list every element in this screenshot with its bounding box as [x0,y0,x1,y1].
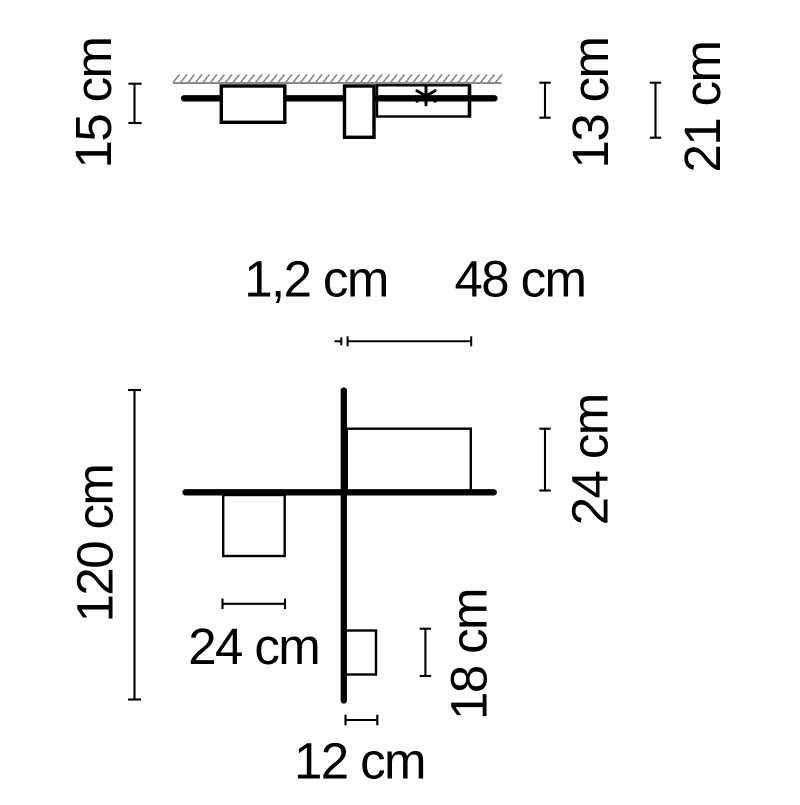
svg-text:24 cm: 24 cm [188,618,319,675]
svg-text:48 cm: 48 cm [455,251,586,308]
svg-text:24 cm: 24 cm [562,394,619,525]
svg-text:12 cm: 12 cm [294,733,425,790]
svg-text:13 cm: 13 cm [562,38,619,169]
svg-text:15 cm: 15 cm [65,38,122,169]
svg-text:21 cm: 21 cm [674,42,731,173]
svg-text:1,2 cm: 1,2 cm [244,251,387,308]
svg-text:18 cm: 18 cm [441,589,498,720]
svg-text:120 cm: 120 cm [67,465,124,623]
